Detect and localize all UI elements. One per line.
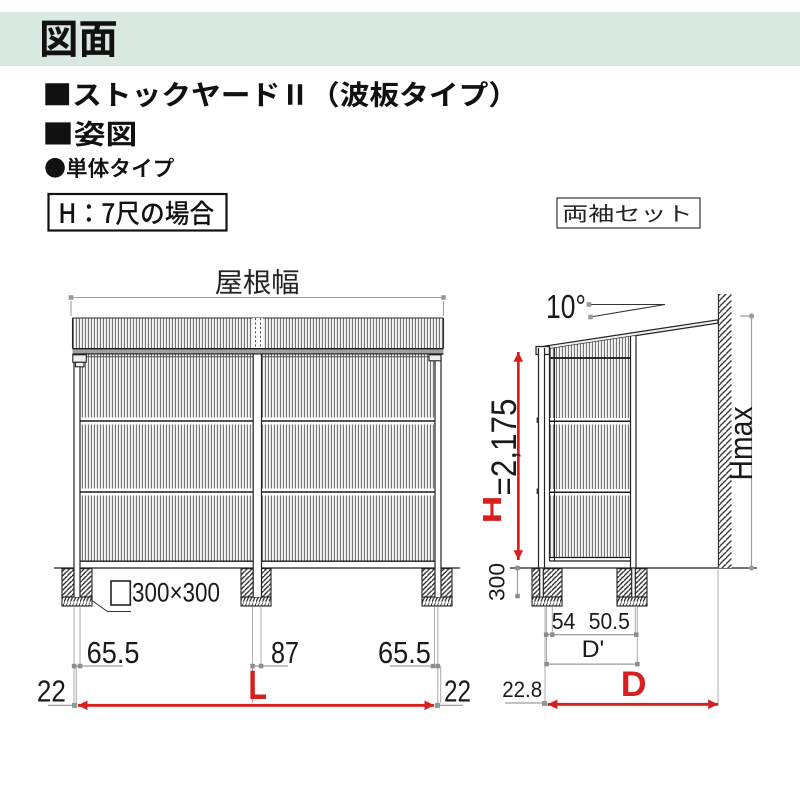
svg-text:50.5: 50.5 [589, 608, 630, 634]
svg-text:D': D' [582, 636, 605, 663]
svg-text:300: 300 [485, 563, 510, 601]
svg-text:65.5: 65.5 [87, 635, 140, 670]
svg-text:22: 22 [444, 674, 471, 709]
svg-text:22: 22 [37, 674, 66, 709]
svg-text:Hmax: Hmax [723, 407, 759, 481]
svg-text:=2,175: =2,175 [485, 399, 524, 496]
svg-text:L: L [248, 662, 267, 708]
svg-text:H: H [477, 496, 507, 524]
svg-text:D: D [621, 665, 647, 704]
svg-text:300×300: 300×300 [132, 578, 220, 608]
svg-text:87: 87 [271, 635, 299, 670]
svg-text:54: 54 [552, 608, 576, 634]
svg-text:65.5: 65.5 [378, 635, 431, 670]
svg-text:22.8: 22.8 [502, 677, 542, 702]
svg-text:10°: 10° [546, 288, 586, 325]
